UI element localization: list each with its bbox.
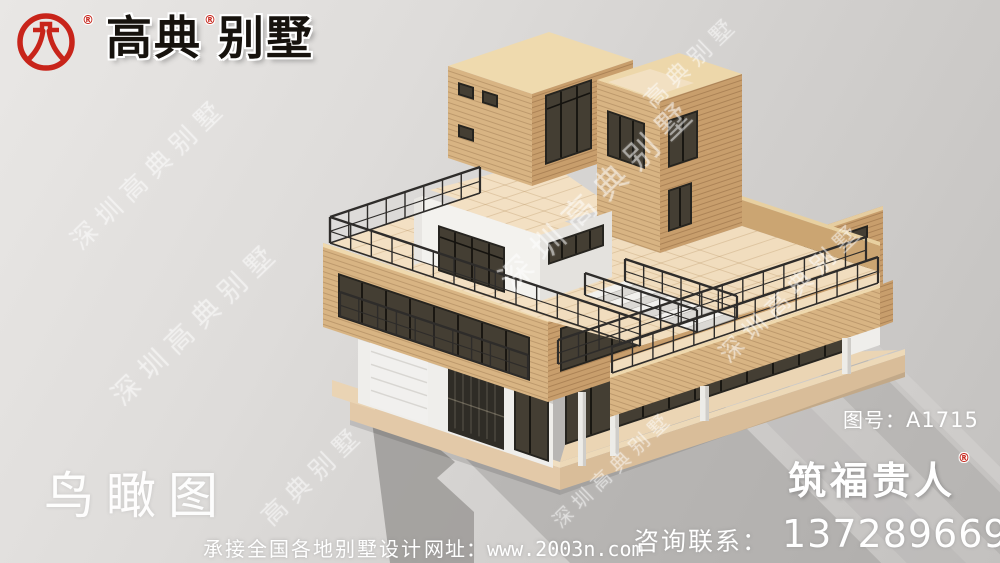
logo: ® 高典 ® 别墅 [14, 8, 314, 74]
brand-name-part2: 别墅 [218, 8, 314, 68]
secondary-brand-reg-mark: ® [958, 452, 970, 464]
website-label: 网址： [424, 537, 487, 561]
service-scope-text: 承接全国各地别墅设计 [203, 533, 423, 562]
website-url[interactable]: www.2003n.com [487, 537, 644, 561]
right-wing [597, 53, 742, 253]
logo-reg-mark: ® [82, 14, 94, 26]
secondary-brand-name: 筑福贵人 [788, 458, 956, 503]
drawing-number-label: 图号： [843, 408, 906, 432]
secondary-brand: 筑福贵人 ® [788, 450, 956, 505]
brand-name-part1: 高典 [106, 8, 202, 68]
drawing-number: 图号：A1715 [843, 404, 979, 433]
drawing-number-value: A1715 [906, 408, 979, 432]
logo-emblem-icon [14, 8, 80, 74]
brand-reg-mark: ® [204, 14, 216, 26]
contact-label: 咨询联系： [634, 522, 769, 558]
website-text: 网址：www.2003n.com [424, 533, 644, 562]
contact-phone[interactable]: 13728966966 [782, 512, 1000, 556]
view-label: 鸟瞰图 [44, 456, 230, 528]
poster-canvas: 深圳高典别墅深圳高典别墅深圳高典别墅高典别墅深圳高典别墅深圳高典别墅高典别墅 ®… [0, 0, 1000, 563]
